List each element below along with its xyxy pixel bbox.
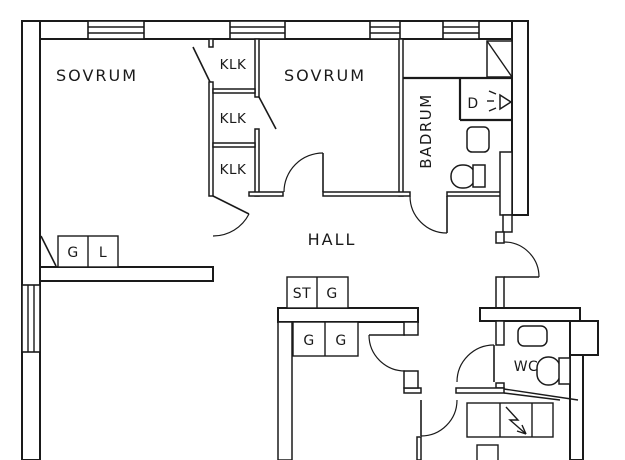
door-swing-arc [213,214,249,236]
exterior-wall-right [512,21,528,215]
door-swing-arc [504,242,539,277]
door-wc [457,345,494,382]
wall [278,308,418,322]
door-swing-arc [369,335,405,371]
label-hall: HALL [308,230,357,249]
door-swing-arc [421,400,457,436]
door-lower-room [369,335,405,371]
wc-toilet-icon [537,357,570,385]
bathroom-toilet-icon [451,165,485,188]
wall [496,232,504,243]
exterior-wall-left [22,21,40,460]
cabinet-open-door [41,236,56,266]
door-swing-arc [284,153,323,192]
wall [404,322,418,335]
shower-spray-icon [487,91,511,111]
door-bedroom-right-hall [284,153,323,192]
fixtures [451,91,570,385]
door-hall-closet [213,196,249,236]
window [22,285,40,352]
wall [249,192,283,196]
label-closet-3: KLK [220,162,247,178]
bathroom-sink-icon [467,127,489,152]
wall [209,39,213,47]
wall [209,82,213,196]
doors [193,47,539,436]
label-cabinet-l: L [99,245,107,261]
door-swing-arc [457,345,494,382]
wall [278,322,292,460]
label-closet-2: KLK [220,111,247,127]
wall [496,321,504,345]
wall [456,388,504,393]
door-entrance [504,242,539,277]
label-shower: D [467,96,478,112]
door-lower-passage [421,400,457,436]
door-swing-arc [410,196,447,233]
wall [399,39,403,196]
label-wc: WC [514,359,539,375]
label-bedroom-left: SOVRUM [56,66,138,85]
vent-shaft [487,41,512,77]
label-closet-1: KLK [220,57,247,73]
label-bathroom: BADRUM [417,93,435,168]
wall [570,321,598,355]
wall [40,267,213,281]
wall [500,152,512,215]
door-bedroom-right-inner [259,97,276,129]
window [443,21,479,39]
door-bedroom-left [193,47,210,82]
floor-plan-canvas: SOVRUM SOVRUM KLK KLK KLK BADRUM D HALL … [0,0,625,460]
window [230,21,285,39]
wall [255,129,259,196]
cabinet-small [477,445,498,460]
window [370,21,400,39]
wall [480,308,580,321]
label-bedroom-right: SOVRUM [284,66,366,85]
label-cabinet-g2: G [326,286,337,302]
door-bathroom [410,196,447,233]
wall [417,437,421,460]
wall [404,371,418,388]
wall [213,143,255,147]
label-cabinet-st: ST [293,286,311,302]
label-cabinet-g3: G [303,333,314,349]
wc-sink-icon [518,326,547,346]
label-cabinet-g4: G [335,333,346,349]
label-cabinet-g: G [67,245,78,261]
wall [503,215,512,232]
wall [323,192,410,196]
wall [570,355,583,460]
floor-plan: SOVRUM SOVRUM KLK KLK KLK BADRUM D HALL … [0,0,625,460]
wall [213,89,255,93]
window [88,21,144,39]
